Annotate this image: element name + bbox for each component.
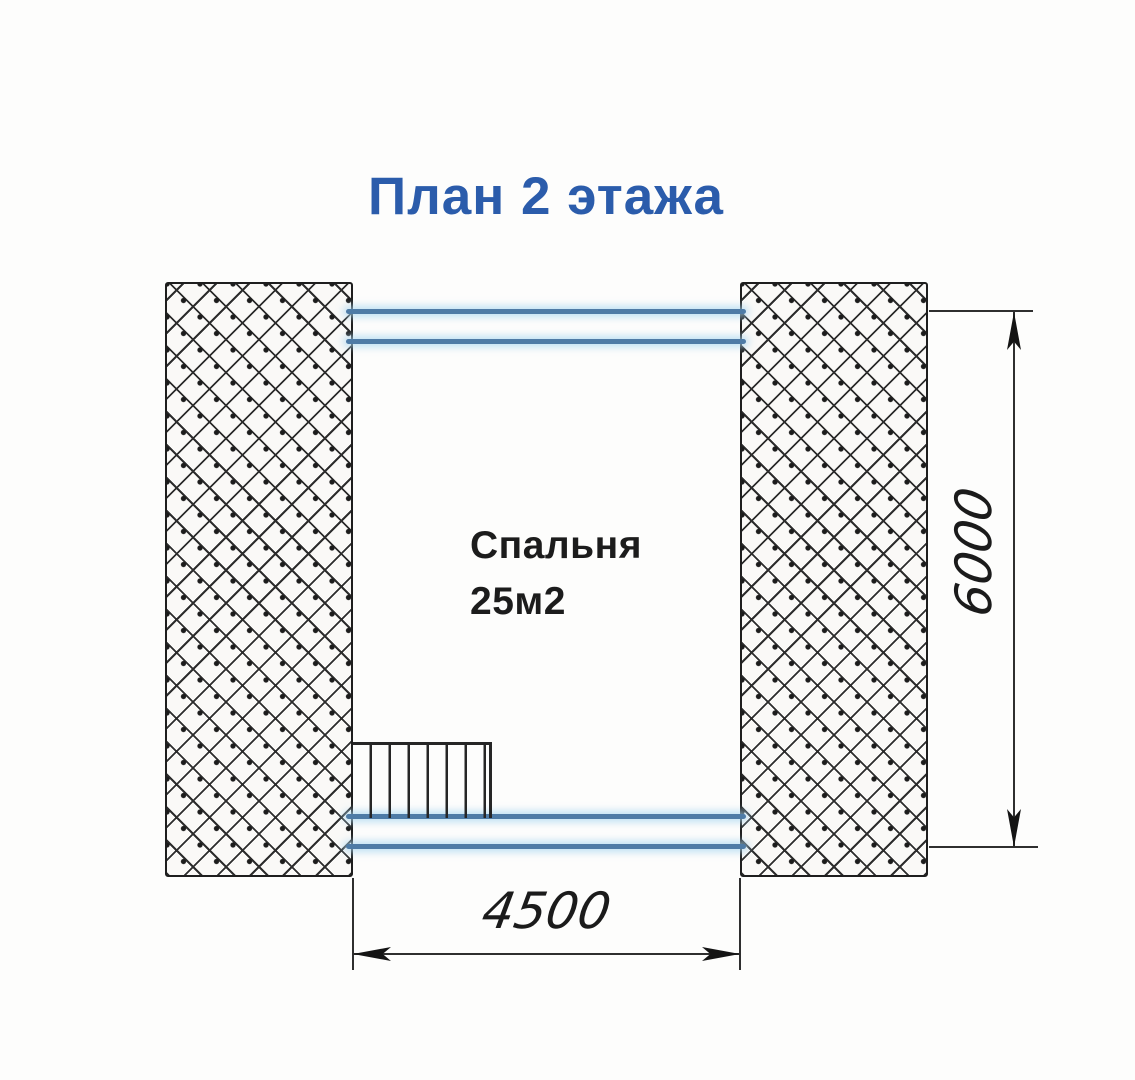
floor-plan-canvas: План 2 этажа Спальня 25м2 4500 6000: [0, 0, 1135, 1080]
dim-4500-line: [353, 953, 740, 955]
dim-6000-extension-top: [929, 310, 1033, 312]
top-wall-inner-line: [346, 339, 746, 344]
left-hatched-wall: [165, 282, 353, 877]
staircase: [353, 742, 492, 818]
room-name: Спальня: [470, 518, 642, 574]
bottom-wall-outer-line: [346, 844, 746, 849]
dim-4500-label: 4500: [348, 882, 745, 940]
room-label: Спальня 25м2: [470, 518, 642, 630]
room-area: 25м2: [470, 574, 642, 630]
right-hatched-wall: [740, 282, 928, 877]
dim-6000-extension-bottom: [929, 846, 1038, 848]
plan-title: План 2 этажа: [146, 166, 946, 227]
dim-6000-label: 6000: [946, 447, 1002, 657]
dim-6000-line: [1013, 311, 1015, 848]
top-wall-outer-line: [346, 309, 746, 314]
